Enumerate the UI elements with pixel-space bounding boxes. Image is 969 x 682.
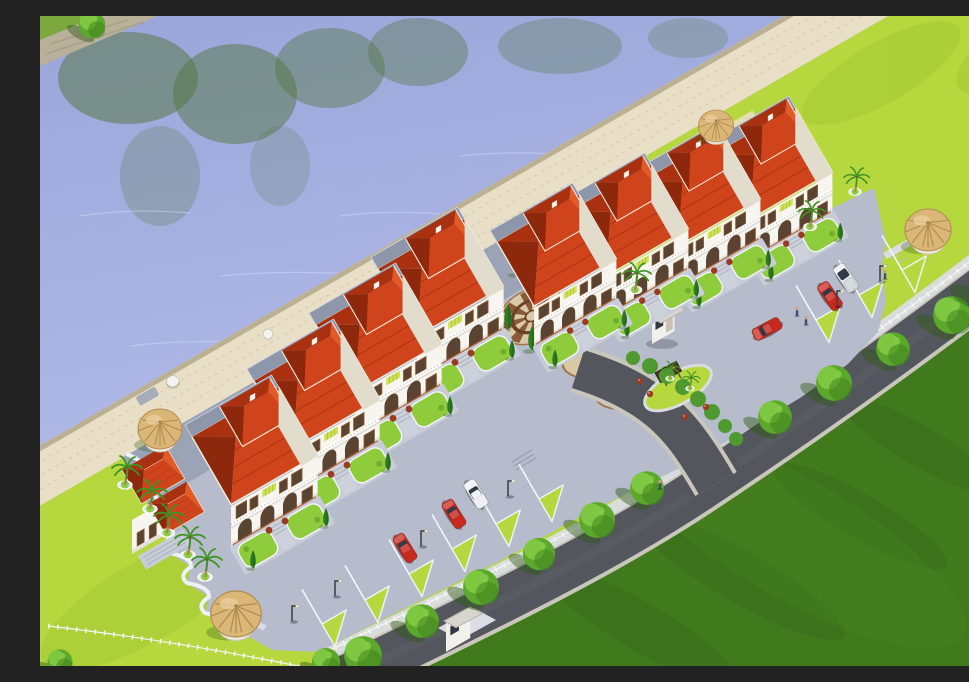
flower-pot (682, 414, 688, 420)
aerial-render: Aerial 3D architectural rendering of a r… (40, 16, 969, 666)
flower-pot (703, 404, 709, 410)
flower-pot (647, 391, 653, 397)
scene-canvas (40, 16, 969, 666)
flower-pot (637, 378, 643, 384)
